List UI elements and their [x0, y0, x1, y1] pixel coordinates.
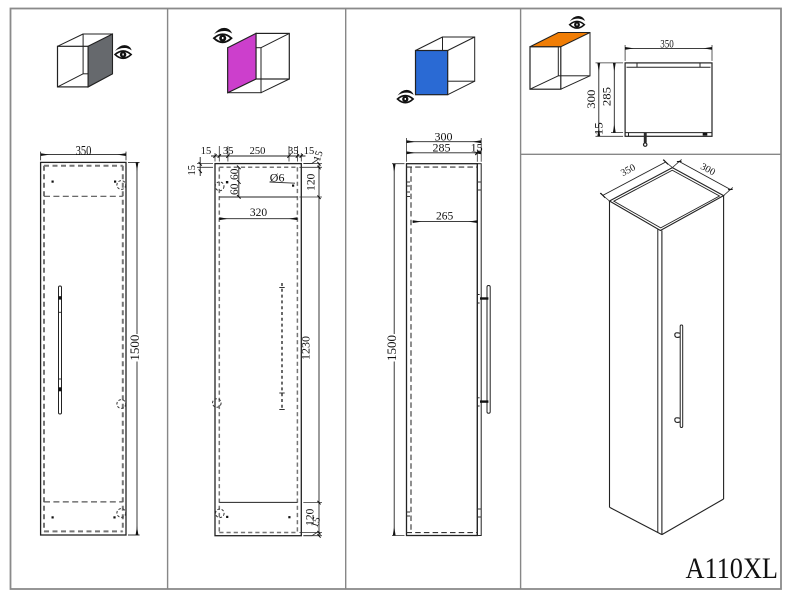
svg-text:A110XL: A110XL — [686, 552, 779, 585]
svg-text:15: 15 — [592, 122, 606, 135]
svg-text:1500: 1500 — [384, 335, 399, 361]
svg-text:350: 350 — [660, 36, 674, 50]
svg-text:35: 35 — [288, 146, 299, 157]
svg-text:15: 15 — [187, 165, 198, 176]
svg-text:120: 120 — [305, 173, 317, 191]
svg-text:250: 250 — [250, 146, 266, 157]
svg-text:350: 350 — [76, 143, 92, 158]
svg-text:265: 265 — [436, 210, 454, 222]
svg-text:1500: 1500 — [127, 335, 142, 361]
svg-text:285: 285 — [599, 87, 613, 106]
svg-text:60: 60 — [229, 183, 241, 195]
svg-text:60: 60 — [229, 168, 241, 180]
svg-text:285: 285 — [433, 140, 451, 154]
svg-text:300: 300 — [584, 90, 598, 109]
svg-text:1230: 1230 — [299, 336, 313, 360]
svg-text:15: 15 — [471, 140, 483, 154]
svg-text:15: 15 — [201, 146, 212, 157]
svg-text:35: 35 — [223, 146, 234, 157]
svg-text:320: 320 — [250, 207, 268, 219]
